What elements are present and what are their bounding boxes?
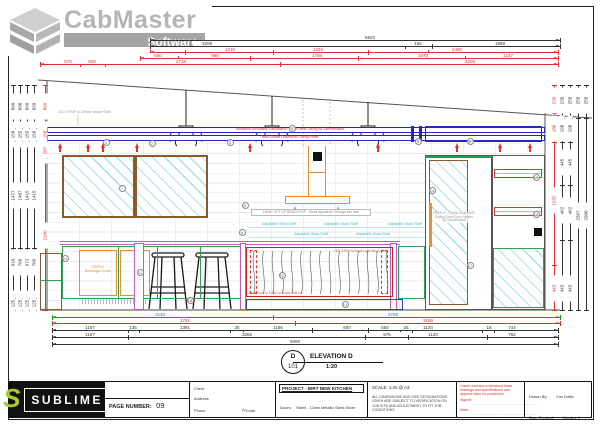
- dimension: [432, 44, 433, 49]
- page-number-cell: PAGE NUMBER: 09: [105, 382, 190, 417]
- drawing-sheet: Additional Decorative Galvanised I Beam …: [0, 0, 600, 424]
- dimension: 899: [25, 93, 30, 119]
- dimension: 760: [32, 249, 37, 275]
- dimension: 898: [18, 93, 23, 119]
- dimension: 3761: [171, 318, 199, 323]
- dimension: [128, 335, 129, 340]
- dimension: 899: [11, 93, 16, 119]
- dimension: 443: [560, 275, 565, 301]
- dimension: 1532: [552, 187, 557, 213]
- dimension: 762: [498, 332, 526, 337]
- callout-balloon: 7: [119, 185, 126, 192]
- dimension: [552, 310, 557, 311]
- sublime-s-glyph: S: [3, 388, 20, 408]
- dimension: 760: [18, 249, 23, 275]
- dimension: 1756: [303, 53, 331, 58]
- dimension: 258: [568, 87, 573, 113]
- dimension: [11, 85, 16, 86]
- dimension: [584, 85, 589, 86]
- dimension: [295, 321, 296, 326]
- dimension: 6000: [281, 339, 309, 344]
- dimension: [32, 85, 37, 86]
- dimension: 186: [552, 115, 557, 141]
- dimension: [43, 85, 48, 86]
- dimension: [498, 143, 502, 148]
- approval-cell: I have read and understood these drawing…: [457, 382, 525, 417]
- dimension: [52, 317, 560, 318]
- dimension: 1247: [494, 53, 522, 58]
- dimension: 910: [11, 249, 16, 275]
- dimension: 1166: [264, 325, 292, 330]
- callout-balloon: 16: [533, 211, 540, 218]
- dimension: 3118: [146, 312, 174, 317]
- callout-balloon: 8: [242, 202, 249, 209]
- dimension: 1120: [419, 332, 447, 337]
- dimension: [528, 143, 532, 148]
- client-cell: Client Address Phone P/Code: [190, 382, 276, 417]
- dimension: [560, 240, 565, 241]
- dimension: 258: [576, 87, 581, 113]
- dimension: 1477: [11, 182, 16, 208]
- dimension: 135: [119, 325, 147, 330]
- callout-balloon: 10: [62, 255, 69, 262]
- dimension: [568, 310, 573, 311]
- dimension: [18, 85, 23, 86]
- scale-note: ALL DIMENSIONS AND SIZE DESIGNATIONS GIV…: [372, 395, 453, 413]
- callout-balloon: 3: [227, 139, 234, 146]
- dimension: 155: [18, 121, 23, 147]
- dimension: [576, 118, 581, 119]
- dimension: [150, 38, 151, 43]
- scale-label: SCALE: 1:20 @ A3: [372, 385, 409, 390]
- dimension: 125: [11, 290, 16, 316]
- dimension: 575: [373, 332, 401, 337]
- dimension: [248, 143, 252, 148]
- dimension: [135, 143, 139, 148]
- dimension: 699: [32, 93, 37, 119]
- dimension: 2908: [584, 202, 589, 228]
- dimension: 125: [18, 290, 23, 316]
- drawn-row-label: Date Created:: [529, 415, 554, 420]
- dimension: [558, 56, 559, 61]
- callout-balloon: 6: [467, 138, 474, 145]
- dimension: [185, 50, 186, 55]
- dimension: [558, 50, 559, 55]
- dimension: [140, 56, 141, 61]
- page-number-value: 09: [156, 401, 164, 410]
- callout-balloon: 13: [342, 301, 349, 308]
- dimension: [558, 328, 559, 333]
- dimension: 2100: [43, 222, 48, 248]
- dimension: [52, 344, 558, 345]
- dimension: 1415: [25, 182, 30, 208]
- dimension: 744: [498, 325, 526, 330]
- dimension: [560, 38, 561, 43]
- approval-statement: I have read and understood these drawing…: [460, 384, 522, 397]
- dimension: 1487: [18, 182, 23, 208]
- phone-label: Phone: [194, 408, 206, 413]
- dimension: [52, 342, 53, 347]
- callout-balloon: 2: [149, 140, 156, 147]
- dimension: 3716: [167, 59, 195, 64]
- dimension: [150, 44, 151, 49]
- dimension: [52, 321, 53, 326]
- callout-balloon: 5: [415, 138, 422, 145]
- dimension: 236: [552, 87, 557, 113]
- dimension: [558, 335, 559, 340]
- dimension: [273, 50, 274, 55]
- dimension: [560, 185, 565, 186]
- dimension: 899: [43, 93, 48, 119]
- dimension: [40, 64, 558, 65]
- dimension: 198: [560, 115, 565, 141]
- dimension: [365, 335, 366, 340]
- dimension-layer: 6923320815518881215134524506509681756107…: [0, 0, 600, 424]
- project-cell: PROJECT - BIRT NEW KITCHEN Doors: Stann …: [276, 382, 368, 417]
- dimension: 672: [25, 249, 30, 275]
- dimension: [368, 328, 369, 333]
- dimension: [560, 142, 565, 143]
- dimension: 3208: [193, 41, 221, 46]
- callout-balloon: 12: [279, 272, 286, 279]
- dimension: [558, 62, 559, 67]
- dimension: 1120: [414, 325, 442, 330]
- dimension: [560, 315, 561, 320]
- dimension: 6923: [356, 35, 384, 40]
- dimension: [52, 315, 53, 320]
- dimension: [560, 44, 561, 49]
- dimension: 258: [584, 87, 589, 113]
- dimension: 125: [25, 290, 30, 316]
- approval-signed-label: Signed:: [460, 398, 472, 402]
- page-number-label: PAGE NUMBER:: [109, 404, 152, 410]
- dimension: 3788: [379, 312, 407, 317]
- dimension: 125: [32, 290, 37, 316]
- dimension: [25, 85, 30, 86]
- dimension: [552, 265, 557, 266]
- dimension: 1888: [486, 41, 514, 46]
- dimension: [40, 62, 41, 67]
- dimension: [552, 142, 557, 143]
- dimension: 198: [568, 115, 573, 141]
- dimension: 1187: [76, 325, 104, 330]
- dimension: 825: [78, 59, 106, 64]
- dimension: [584, 118, 589, 119]
- dimension: [101, 143, 105, 148]
- project-row-label: Doors:: [280, 405, 292, 410]
- dimension: 445: [560, 149, 565, 175]
- dimension: 1345: [304, 47, 332, 52]
- client-label: Client: [194, 386, 204, 391]
- dimension: [568, 142, 573, 143]
- dimension: [455, 143, 459, 148]
- address-label: Address: [194, 396, 209, 401]
- pcode-label: P/Code: [242, 408, 255, 413]
- dimension: [312, 328, 313, 333]
- dimension: 1415: [32, 182, 37, 208]
- dimension: [250, 56, 251, 61]
- dimension: [358, 56, 359, 61]
- dimension: 443: [552, 275, 557, 301]
- dimension: [273, 315, 274, 320]
- dimension: 3282: [233, 332, 261, 337]
- dimension: 462: [560, 197, 565, 223]
- approval-date-label: Date: -: [460, 408, 471, 412]
- dimension: [584, 310, 589, 311]
- dimension: [560, 321, 561, 326]
- dimension: 1391: [171, 325, 199, 330]
- dimension: [140, 58, 558, 59]
- dimension: [86, 143, 90, 148]
- dimension: [43, 310, 48, 311]
- dimension: [52, 335, 53, 340]
- dimension: [576, 310, 581, 311]
- dimension: [568, 240, 573, 241]
- dimension: 2367: [576, 202, 581, 228]
- callout-balloon: 14: [429, 187, 436, 194]
- drawn-cell: Drawn By: Kim Duffin Date Created: Monda…: [525, 382, 591, 417]
- dimension: [150, 46, 560, 47]
- dimension: 236: [560, 87, 565, 113]
- drawn-row-value: Kim Duffin: [556, 395, 573, 399]
- dimension: 443: [568, 275, 573, 301]
- callout-balloon: 17: [467, 262, 474, 269]
- dimension: [560, 85, 565, 86]
- dimension: 3166: [414, 318, 442, 323]
- sublime-brand: SUBLIME: [24, 388, 110, 412]
- dimension: 3205: [456, 59, 484, 64]
- dimension: [52, 328, 53, 333]
- dimension: [58, 143, 62, 148]
- drawn-row-label: Drawn By:: [529, 394, 547, 399]
- project-row-value: Stann - 12mm Metallic Sleek Silver: [296, 406, 355, 410]
- dimension: 1215: [216, 47, 244, 52]
- title-block: S SUBLIME PAGE NUMBER: 09 Client Address…: [8, 381, 592, 418]
- dimension: 25: [223, 325, 251, 330]
- dimension: [558, 342, 559, 347]
- dimension: 287: [43, 137, 48, 163]
- dimension: 600: [333, 325, 361, 330]
- scale-cell: SCALE: 1:20 @ A3 ALL DIMENSIONS AND SIZE…: [368, 382, 457, 417]
- callout-balloon: 18: [187, 297, 194, 304]
- dimension: [568, 85, 573, 86]
- callout-balloon: 4: [289, 125, 296, 132]
- dimension: [376, 143, 380, 148]
- callout-balloon: 15: [533, 174, 540, 181]
- dimension: 445: [568, 149, 573, 175]
- dimension: [487, 335, 488, 340]
- dimension: [552, 85, 557, 86]
- dimension: 650: [144, 53, 172, 58]
- dimension: [368, 50, 369, 55]
- dimension: 2450: [443, 47, 471, 52]
- dimension: 968: [201, 53, 229, 58]
- dimension: 1070: [409, 53, 437, 58]
- dimension: [568, 185, 573, 186]
- dimension: [560, 310, 565, 311]
- dimension: 462: [568, 197, 573, 223]
- project-title: PROJECT - BIRT NEW KITCHEN: [279, 384, 364, 393]
- dimension: 155: [404, 41, 432, 46]
- dimension: [576, 85, 581, 86]
- dimension: [408, 335, 409, 340]
- dimension: [280, 62, 281, 67]
- dimension: 158: [11, 121, 16, 147]
- callout-balloon: 11: [137, 269, 144, 276]
- sublime-logo: S SUBLIME: [9, 382, 105, 417]
- callout-balloon: 9: [239, 229, 246, 236]
- dimension: 1187: [76, 332, 104, 337]
- dimension: 155: [25, 121, 30, 147]
- dimension: 156: [32, 121, 37, 147]
